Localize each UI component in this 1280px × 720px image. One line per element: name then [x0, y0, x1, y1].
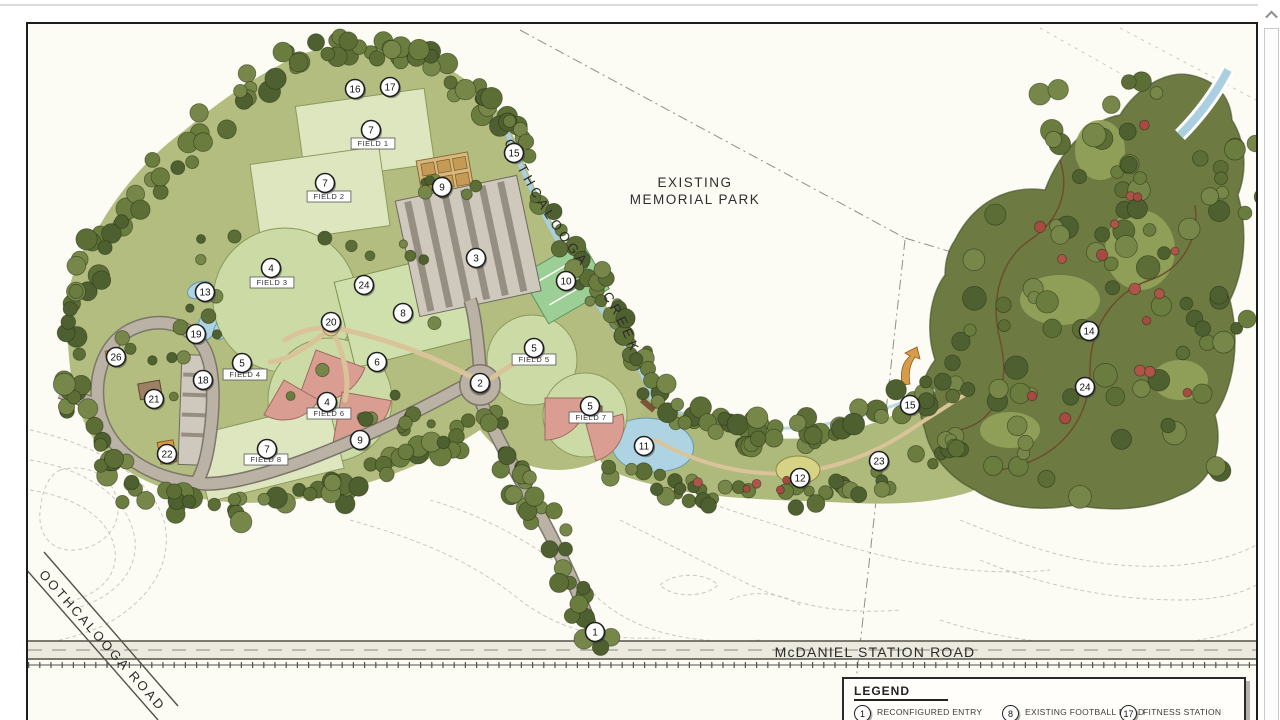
tree: [61, 315, 76, 330]
tree: [437, 53, 458, 74]
tree: [177, 351, 190, 364]
tree: [444, 76, 457, 89]
svg-text:2: 2: [477, 378, 483, 389]
tree: [380, 467, 395, 482]
tree: [788, 500, 804, 516]
tree: [1034, 221, 1045, 232]
tree: [1121, 75, 1136, 90]
tree: [316, 363, 329, 376]
tree: [708, 424, 723, 439]
svg-text:7: 7: [264, 444, 270, 455]
tree: [1072, 170, 1086, 184]
tree: [105, 449, 124, 468]
tree: [427, 420, 435, 428]
tree: [701, 498, 717, 514]
tree: [1121, 156, 1138, 173]
legend-item-17: 17FITNESS STATION: [1120, 705, 1221, 720]
tree: [73, 348, 85, 360]
tree: [789, 415, 806, 432]
tree: [303, 487, 317, 501]
tree: [498, 447, 516, 465]
tree: [1096, 249, 1107, 260]
tree: [807, 495, 825, 513]
tree: [69, 284, 83, 298]
tree: [948, 440, 965, 457]
tree: [481, 87, 503, 109]
tree: [626, 463, 638, 475]
tree: [470, 180, 482, 192]
svg-text:11: 11: [639, 441, 650, 452]
existing-memorial-park-label-line2: MEMORIAL PARK: [630, 192, 761, 207]
tree: [398, 444, 414, 460]
tree: [928, 458, 939, 469]
tree: [1094, 363, 1118, 387]
tree: [1105, 281, 1119, 295]
tree: [1161, 418, 1175, 432]
tree: [1142, 316, 1150, 324]
mcdaniel-station-road-label: McDANIEL STATION ROAD: [775, 644, 976, 660]
tree: [1045, 131, 1061, 147]
tree: [776, 486, 784, 494]
tree: [116, 495, 129, 508]
svg-text:9: 9: [439, 182, 445, 193]
tree: [365, 251, 375, 261]
tree: [201, 309, 216, 324]
tree: [1206, 457, 1226, 477]
tree: [783, 476, 791, 484]
tree: [383, 41, 401, 59]
svg-text:7: 7: [368, 125, 374, 136]
tree: [1051, 226, 1070, 245]
tree: [961, 382, 975, 396]
tree: [503, 115, 515, 127]
tree: [1134, 172, 1147, 185]
tree: [286, 392, 295, 401]
svg-text:10: 10: [560, 276, 572, 287]
tree: [635, 463, 652, 480]
tree: [480, 414, 498, 432]
tree: [1176, 346, 1190, 360]
tree: [874, 409, 888, 423]
tree: [886, 380, 906, 400]
tree: [1095, 227, 1110, 242]
tree: [829, 474, 844, 489]
tree: [637, 388, 649, 400]
tree: [577, 581, 590, 594]
tree: [602, 460, 616, 474]
tree: [218, 120, 237, 139]
tree: [1082, 123, 1106, 147]
tree: [115, 331, 130, 346]
tree: [76, 229, 97, 250]
tree: [1029, 83, 1051, 105]
tree: [1180, 297, 1193, 310]
tree: [1106, 387, 1125, 406]
tree: [851, 487, 867, 503]
tree: [1193, 151, 1209, 167]
tree: [437, 436, 450, 449]
svg-text:22: 22: [161, 449, 173, 460]
tree: [1145, 366, 1156, 377]
legend-item-number: 17: [1120, 705, 1137, 720]
tree: [137, 491, 155, 509]
tree: [405, 250, 416, 261]
tree: [358, 412, 373, 427]
tree: [963, 286, 987, 310]
svg-text:8: 8: [400, 308, 406, 319]
tree: [998, 320, 1010, 332]
tree: [186, 304, 194, 312]
legend-item-text: FITNESS STATION: [1143, 705, 1221, 720]
tree: [148, 356, 157, 365]
tree: [1143, 224, 1156, 237]
tree: [650, 483, 663, 496]
tree: [1171, 247, 1179, 255]
tree: [1151, 296, 1171, 316]
tree: [946, 389, 960, 403]
tree: [190, 104, 208, 122]
scroll-up-button[interactable]: [1263, 4, 1279, 26]
legend-item-number: 8: [1002, 705, 1019, 720]
tree: [525, 487, 544, 506]
tree: [570, 595, 588, 613]
svg-text:FIELD 3: FIELD 3: [256, 278, 287, 287]
tree: [523, 471, 537, 485]
tree: [94, 439, 107, 452]
tree: [718, 480, 732, 494]
tree: [743, 485, 750, 492]
svg-text:21: 21: [148, 394, 160, 405]
tree: [1119, 123, 1136, 140]
svg-text:4: 4: [324, 397, 330, 408]
tree: [1060, 413, 1071, 424]
tree: [318, 231, 332, 245]
legend-items: 1RECONFIGURED ENTRY- TRAFFIC SIGNAL- ONE…: [844, 703, 1244, 720]
tree: [171, 161, 185, 175]
tree: [98, 241, 112, 255]
tree: [1195, 321, 1211, 337]
tree: [228, 493, 240, 505]
tree: [1193, 384, 1212, 403]
tree: [418, 185, 432, 199]
legend-box: LEGEND 1RECONFIGURED ENTRY- TRAFFIC SIGN…: [842, 677, 1246, 720]
svg-text:16: 16: [349, 84, 361, 95]
svg-text:15: 15: [508, 148, 520, 159]
tree: [1158, 247, 1171, 260]
tree: [321, 47, 335, 61]
page-edge-line: [0, 4, 1258, 6]
tree: [390, 390, 400, 400]
tree: [1136, 256, 1160, 280]
tree: [752, 479, 761, 488]
tree: [1005, 356, 1028, 379]
tree: [53, 373, 75, 395]
tree: [682, 494, 696, 508]
tree: [1201, 188, 1218, 205]
svg-text:24: 24: [358, 280, 370, 291]
tree: [419, 255, 429, 265]
tree: [145, 152, 160, 167]
tree: [727, 414, 748, 435]
tree: [151, 168, 169, 186]
svg-text:6: 6: [374, 357, 380, 368]
tree: [131, 200, 150, 219]
tree: [874, 482, 890, 498]
tree: [1140, 120, 1150, 130]
legend-item-1: 1RECONFIGURED ENTRY- TRAFFIC SIGNAL- ONE…: [854, 705, 982, 720]
tree: [234, 84, 247, 97]
tree: [1018, 435, 1033, 450]
tree: [167, 352, 177, 362]
tree: [1038, 470, 1055, 487]
svg-text:9: 9: [357, 435, 363, 446]
svg-text:14: 14: [1083, 326, 1095, 337]
tree: [1007, 416, 1027, 436]
svg-text:5: 5: [587, 401, 593, 412]
svg-text:4: 4: [268, 263, 274, 274]
svg-text:19: 19: [190, 329, 202, 340]
tree: [765, 429, 783, 447]
tree: [428, 317, 441, 330]
tree: [167, 484, 182, 499]
tree: [1183, 388, 1192, 397]
tree: [92, 271, 111, 290]
svg-text:24: 24: [1079, 382, 1091, 393]
tree: [843, 413, 865, 435]
tree: [1215, 172, 1228, 185]
tree: [1111, 220, 1119, 228]
tree: [78, 399, 98, 419]
tree: [1058, 255, 1067, 264]
tree: [258, 493, 270, 505]
tree: [115, 215, 129, 229]
tree: [153, 184, 168, 199]
tree: [560, 524, 572, 536]
tree: [963, 249, 985, 271]
tree: [230, 511, 252, 533]
svg-text:18: 18: [197, 375, 209, 386]
tree: [169, 392, 178, 401]
tree: [308, 34, 325, 51]
tree: [63, 302, 77, 316]
svg-text:5: 5: [239, 358, 245, 369]
tree: [989, 379, 1008, 398]
tree: [182, 495, 195, 508]
tree: [934, 373, 951, 390]
tree: [399, 240, 407, 248]
svg-text:1: 1: [592, 627, 598, 638]
svg-text:13: 13: [199, 287, 211, 298]
viewer-stage: EXISTING MEMORIAL PARK OOTHCALOOGA CREEK…: [0, 0, 1280, 720]
svg-text:3: 3: [473, 253, 479, 264]
tree: [125, 343, 136, 354]
tree: [1036, 291, 1058, 313]
tree: [455, 79, 476, 100]
tree: [747, 407, 768, 428]
tree: [678, 416, 692, 430]
tree: [228, 230, 241, 243]
tree: [945, 355, 961, 371]
scrollbar-track[interactable]: [1264, 28, 1279, 720]
tree: [289, 53, 308, 72]
tree: [559, 542, 573, 556]
svg-text:23: 23: [873, 456, 885, 467]
tree: [654, 469, 666, 481]
tree: [585, 296, 595, 306]
legend-item-text: RECONFIGURED ENTRY- TRAFFIC SIGNAL- ONE …: [877, 705, 982, 720]
tree: [86, 417, 103, 434]
tree: [1213, 331, 1235, 353]
tree: [505, 486, 522, 503]
tree: [1150, 87, 1163, 100]
tree: [541, 541, 558, 558]
tree: [194, 133, 213, 152]
tree: [1103, 96, 1121, 114]
tree: [197, 235, 206, 244]
vertical-scrollbar[interactable]: [1262, 0, 1280, 720]
tree: [1010, 383, 1030, 403]
plan-sheet: EXISTING MEMORIAL PARK OOTHCALOOGA CREEK…: [26, 22, 1258, 720]
tree: [1069, 486, 1092, 509]
existing-memorial-park-label-line1: EXISTING: [657, 175, 732, 190]
tree: [1133, 193, 1142, 202]
tree: [462, 189, 473, 200]
tree: [964, 324, 976, 336]
tree: [1178, 218, 1200, 240]
park-master-plan-map: EXISTING MEMORIAL PARK OOTHCALOOGA CREEK…: [26, 22, 1258, 720]
legend-title: LEGEND: [854, 684, 948, 701]
tree: [124, 475, 139, 490]
tree: [1129, 283, 1141, 295]
tree: [1210, 286, 1228, 304]
tree: [212, 330, 221, 339]
tree: [399, 416, 413, 430]
tree: [1134, 365, 1145, 376]
tree: [546, 503, 562, 519]
tree: [750, 431, 766, 447]
svg-text:5: 5: [531, 343, 537, 354]
tree: [920, 376, 932, 388]
tree: [674, 483, 686, 495]
legend-item-number: 1: [854, 705, 871, 720]
tree: [804, 426, 822, 444]
svg-text:12: 12: [794, 473, 806, 484]
svg-text:17: 17: [384, 82, 396, 93]
tree: [349, 477, 368, 496]
tree: [671, 398, 684, 411]
tree: [346, 240, 358, 252]
tree: [208, 498, 221, 511]
tree: [1027, 391, 1037, 401]
tree: [409, 39, 430, 60]
tree: [1111, 429, 1131, 449]
tree: [1238, 206, 1252, 220]
tree: [324, 474, 341, 491]
tree: [1154, 289, 1164, 299]
tree: [339, 32, 357, 50]
tree: [196, 254, 206, 264]
svg-text:7: 7: [322, 178, 328, 189]
tree: [265, 68, 286, 89]
tree: [984, 456, 1003, 475]
tree: [693, 478, 702, 487]
tree: [1238, 310, 1256, 328]
tree: [996, 297, 1012, 313]
tree: [657, 374, 676, 393]
tree: [67, 256, 86, 275]
svg-text:20: 20: [325, 317, 337, 328]
tree: [1043, 319, 1062, 338]
tree: [238, 65, 256, 83]
tree: [1048, 79, 1068, 99]
svg-text:26: 26: [110, 352, 122, 363]
tree: [461, 414, 475, 428]
svg-text:15: 15: [904, 400, 916, 411]
tree: [550, 573, 569, 592]
tree: [1224, 139, 1245, 160]
tree: [908, 446, 925, 463]
tree: [1133, 380, 1151, 398]
chevron-up-icon: [1265, 10, 1278, 23]
tree: [369, 51, 384, 66]
tree: [186, 156, 199, 169]
tree: [1115, 235, 1137, 257]
tree: [985, 204, 1006, 225]
